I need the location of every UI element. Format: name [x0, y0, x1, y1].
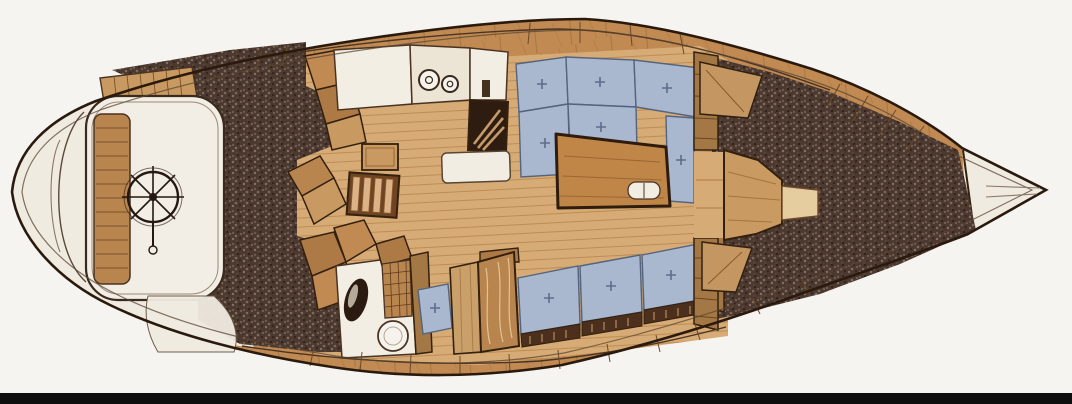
stove-burner-2 [442, 76, 458, 92]
boat-layout-figure: Sailboat interior layout plan, top-down … [0, 0, 1072, 404]
icebox [468, 100, 508, 152]
galley-shelf [441, 151, 510, 183]
salon-table [556, 134, 670, 208]
bulkhead-door-passage [694, 152, 726, 238]
nav-seat [418, 284, 452, 334]
letterbox-bar [0, 393, 1072, 404]
mast-step-block [362, 144, 398, 170]
vberth-insert-tab [782, 186, 818, 220]
stove-top [410, 45, 470, 104]
grate-locker [382, 260, 412, 318]
layout-plan-svg: Sailboat interior layout plan, top-down … [0, 0, 1072, 404]
galley-counter [334, 45, 412, 110]
companionway-steps [347, 172, 400, 217]
table-cup-recesses [628, 182, 660, 199]
sink-faucet [482, 80, 490, 97]
helm-bench [94, 114, 130, 284]
stove-burner-1 [419, 70, 439, 90]
toilet-bowl [378, 321, 408, 351]
